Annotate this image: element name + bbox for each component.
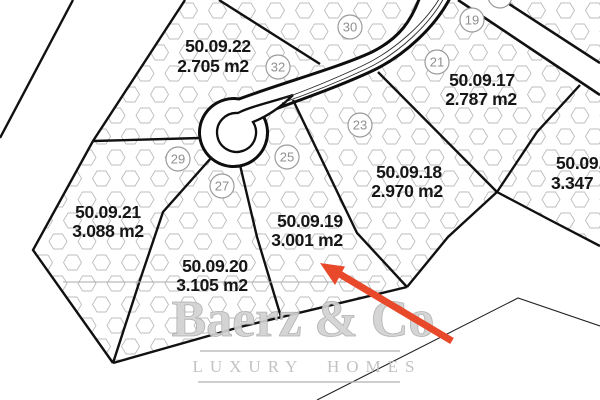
plot-area-label: 3.347	[551, 173, 593, 193]
plot-id-label: 50.09.19	[277, 211, 343, 231]
lot-marker-label: 25	[280, 150, 294, 165]
plot-id-label: 50.09.17	[449, 70, 515, 90]
plot-area-label: 3.001 m2	[271, 230, 343, 250]
lot-marker-label: 21	[430, 55, 444, 70]
watermark-tagline: LUXURY HOMES	[192, 357, 421, 376]
lot-marker: 21	[425, 50, 449, 74]
lot-marker: 23	[348, 113, 372, 137]
parcel-map-svg: 30 32 21 19 23 25 27 29	[0, 0, 600, 400]
plot-area-label: 2.970 m2	[371, 181, 443, 201]
plot-id-label: 50.09.	[556, 153, 600, 173]
plot-area-label: 2.705 m2	[177, 56, 249, 76]
plot-area-label: 3.088 m2	[72, 221, 144, 241]
lot-marker-label: 30	[343, 20, 357, 35]
lot-marker-label: 29	[171, 152, 185, 167]
plot-id-label: 50.09.21	[75, 202, 141, 222]
lot-marker-label: 27	[215, 179, 229, 194]
plot-area-label: 2.787 m2	[445, 89, 517, 109]
lot-marker: 27	[210, 174, 234, 198]
plot-id-label: 50.09.18	[376, 162, 442, 182]
lot-marker-label: 32	[271, 60, 285, 75]
lot-marker: 29	[166, 147, 190, 171]
lot-marker: 19	[460, 8, 484, 32]
plot-id-label: 50.09.22	[185, 36, 251, 56]
lot-marker-label: 23	[353, 118, 367, 133]
lot-marker: 30	[338, 15, 362, 39]
lot-marker-label: 19	[465, 13, 479, 28]
lot-marker: 32	[266, 55, 290, 79]
plot-id-label: 50.09.20	[182, 256, 248, 276]
lot-marker: 25	[275, 145, 299, 169]
watermark-name: Baerz & Co	[172, 291, 435, 348]
lot-marker-partial	[488, 0, 512, 8]
parcel-map: 30 32 21 19 23 25 27 29	[0, 0, 600, 400]
